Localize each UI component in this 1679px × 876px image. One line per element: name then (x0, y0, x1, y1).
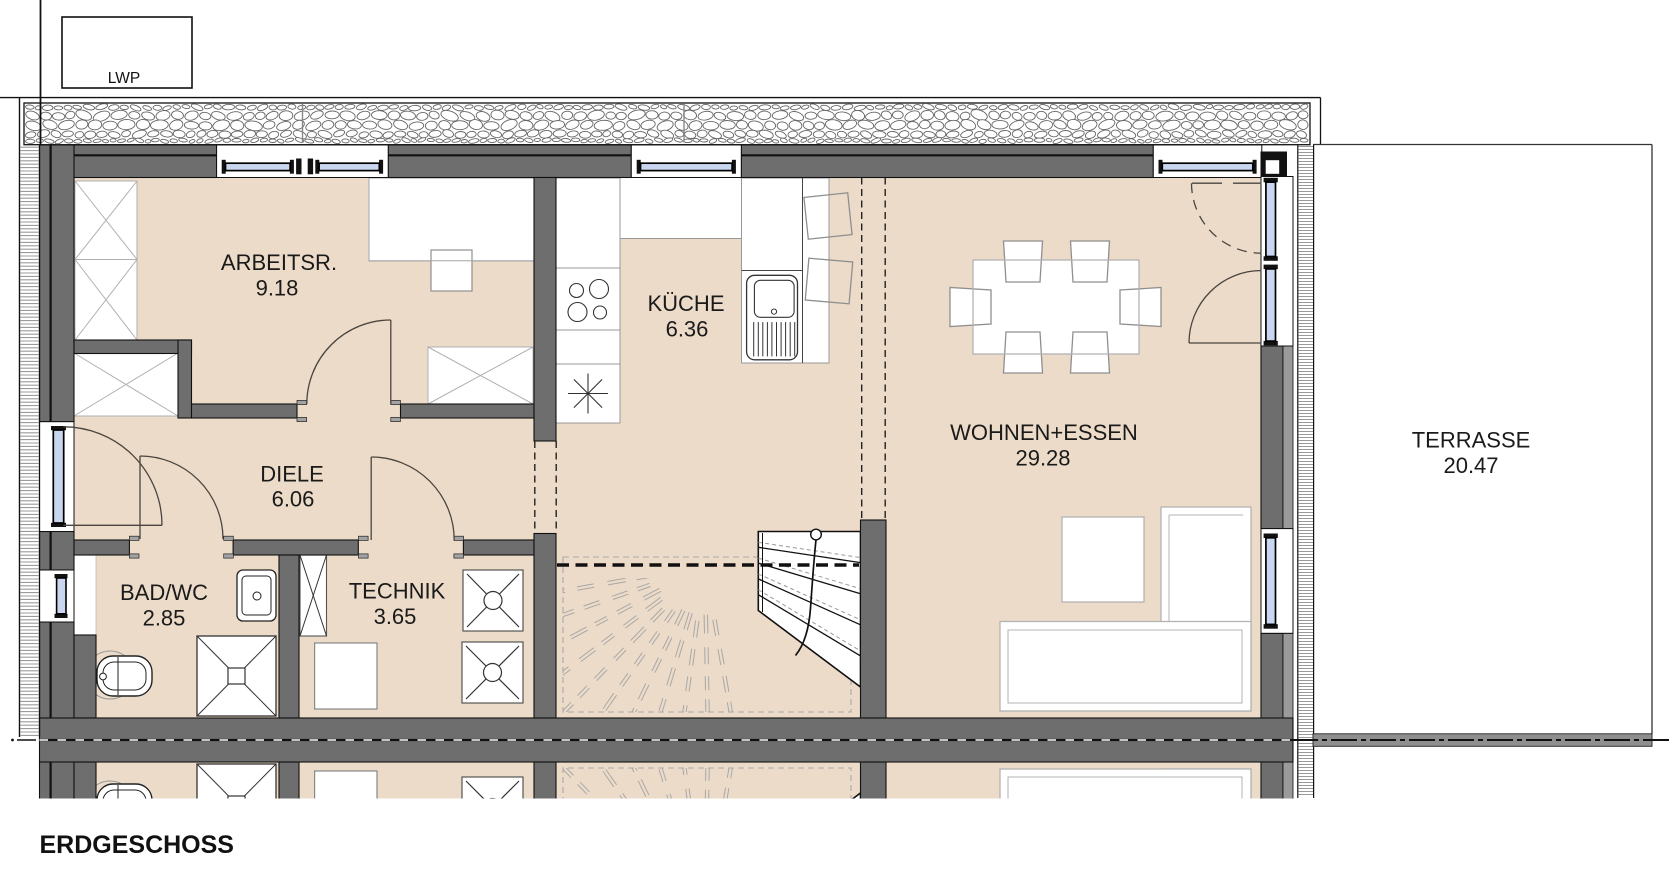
svg-text:3.65: 3.65 (374, 604, 417, 629)
svg-text:20.47: 20.47 (1443, 453, 1498, 478)
svg-text:6.36: 6.36 (666, 317, 709, 342)
svg-text:DIELE: DIELE (260, 462, 324, 487)
svg-text:6.06: 6.06 (272, 487, 315, 512)
svg-text:2.85: 2.85 (143, 606, 186, 631)
svg-text:LWP: LWP (108, 70, 140, 87)
svg-text:ARBEITSR.: ARBEITSR. (221, 250, 337, 275)
svg-text:KÜCHE: KÜCHE (647, 291, 724, 316)
svg-text:TERRASSE: TERRASSE (1412, 428, 1531, 453)
svg-text:WOHNEN+ESSEN: WOHNEN+ESSEN (950, 420, 1138, 445)
svg-text:TECHNIK: TECHNIK (349, 579, 446, 604)
svg-text:9.18: 9.18 (256, 276, 299, 301)
svg-text:29.28: 29.28 (1015, 446, 1070, 471)
svg-text:ERDGESCHOSS: ERDGESCHOSS (40, 831, 234, 859)
svg-text:BAD/WC: BAD/WC (120, 580, 208, 605)
